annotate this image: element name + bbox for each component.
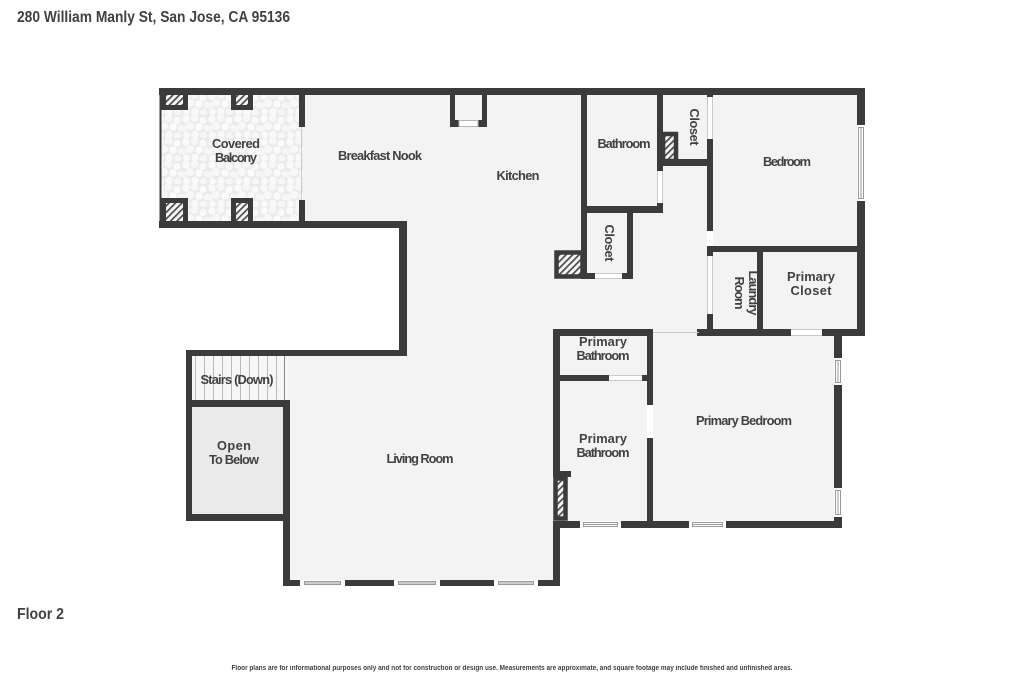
svg-text:Stairs (Down): Stairs (Down) (201, 372, 274, 387)
svg-text:Closet: Closet (602, 225, 617, 263)
svg-text:Breakfast Nook: Breakfast Nook (338, 148, 423, 163)
svg-text:Living Room: Living Room (387, 451, 454, 466)
svg-text:Primary: Primary (579, 334, 628, 349)
svg-text:Bathroom: Bathroom (577, 348, 630, 363)
svg-text:Laundry: Laundry (746, 271, 761, 317)
svg-text:Room: Room (732, 277, 747, 310)
svg-text:Balcony: Balcony (215, 150, 258, 165)
svg-text:To Below: To Below (209, 452, 259, 467)
svg-text:Closet: Closet (791, 283, 833, 298)
svg-text:Bathroom: Bathroom (577, 445, 630, 460)
svg-text:280 William Manly St, San Jose: 280 William Manly St, San Jose, CA 95136 (17, 9, 290, 26)
svg-text:Open: Open (217, 438, 251, 453)
svg-text:Bedroom: Bedroom (763, 154, 811, 169)
svg-text:Primary: Primary (787, 269, 836, 284)
svg-text:Floor plans are for informatio: Floor plans are for informational purpos… (232, 665, 793, 672)
svg-text:Primary: Primary (579, 431, 628, 446)
svg-text:Bathroom: Bathroom (598, 136, 651, 151)
svg-text:Floor 2: Floor 2 (17, 606, 64, 623)
svg-text:Kitchen: Kitchen (497, 168, 540, 183)
svg-text:Primary Bedroom: Primary Bedroom (696, 413, 792, 428)
svg-text:Covered: Covered (212, 136, 260, 151)
svg-text:Closet: Closet (687, 109, 702, 147)
